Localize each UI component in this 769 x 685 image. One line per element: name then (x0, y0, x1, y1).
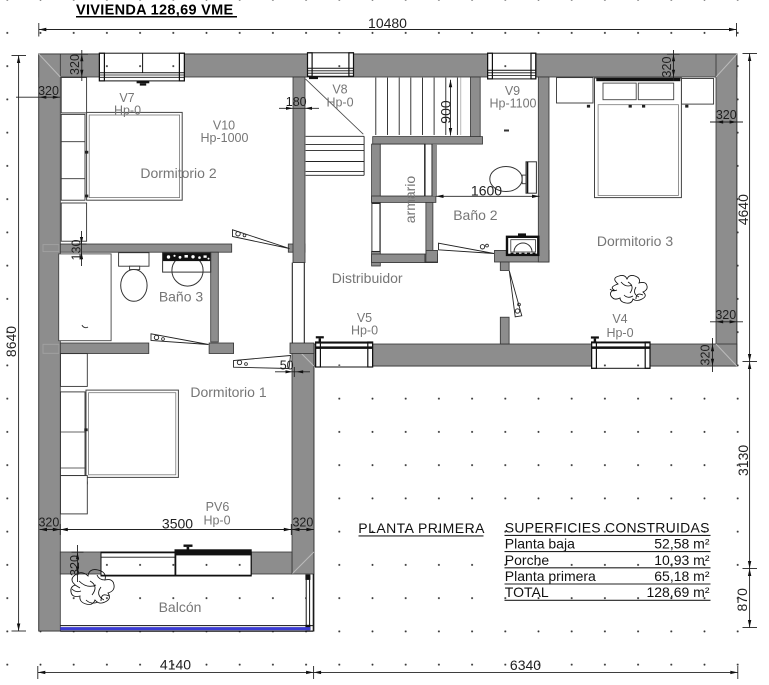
svg-text:Distribuidor: Distribuidor (332, 270, 403, 286)
svg-text:320: 320 (716, 108, 737, 122)
svg-text:SUPERFICIES CONSTRUIDAS: SUPERFICIES CONSTRUIDAS (505, 519, 710, 535)
svg-text:6340: 6340 (510, 657, 541, 673)
svg-text:Porche: Porche (505, 552, 550, 568)
svg-text:900: 900 (438, 100, 454, 124)
svg-text:52,58 m²: 52,58 m² (654, 536, 710, 552)
svg-text:Dormitorio 1: Dormitorio 1 (190, 384, 266, 400)
svg-text:4640: 4640 (735, 194, 751, 225)
svg-text:Hp-1100: Hp-1100 (489, 97, 536, 111)
svg-text:Hp-0: Hp-0 (203, 514, 230, 528)
svg-text:Hp-0: Hp-0 (114, 104, 141, 118)
svg-text:Baño 3: Baño 3 (159, 289, 204, 305)
svg-text:Hp-0: Hp-0 (351, 324, 378, 338)
svg-text:V8: V8 (332, 83, 347, 97)
svg-text:V4: V4 (612, 312, 627, 326)
svg-text:10,93 m²: 10,93 m² (654, 552, 710, 568)
svg-text:320: 320 (38, 84, 59, 98)
svg-text:armario: armario (402, 176, 418, 224)
svg-text:320: 320 (68, 555, 82, 576)
svg-text:10480: 10480 (368, 15, 407, 31)
svg-text:Baño 2: Baño 2 (453, 207, 498, 223)
svg-text:Planta primera: Planta primera (505, 568, 596, 584)
svg-text:320: 320 (698, 345, 712, 366)
svg-text:320: 320 (68, 54, 82, 75)
svg-text:320: 320 (292, 516, 313, 530)
svg-text:Dormitorio 2: Dormitorio 2 (140, 165, 216, 181)
svg-text:128,69 m²: 128,69 m² (646, 584, 709, 600)
svg-text:PV6: PV6 (206, 500, 230, 514)
svg-text:130: 130 (69, 240, 83, 261)
svg-text:1600: 1600 (471, 182, 502, 198)
svg-text:Planta baja: Planta baja (505, 536, 575, 552)
svg-text:Hp-0: Hp-0 (606, 326, 633, 340)
svg-text:Hp-1000: Hp-1000 (201, 131, 249, 145)
svg-text:3500: 3500 (162, 515, 193, 531)
svg-text:320: 320 (660, 57, 674, 78)
svg-text:320: 320 (715, 308, 736, 322)
svg-text:VIVIENDA 128,69 VME: VIVIENDA 128,69 VME (76, 2, 234, 18)
svg-text:TOTAL: TOTAL (505, 584, 549, 600)
svg-text:Dormitorio 3: Dormitorio 3 (597, 233, 673, 249)
svg-text:180: 180 (286, 95, 307, 109)
svg-text:Hp-0: Hp-0 (326, 96, 353, 110)
svg-text:8640: 8640 (3, 326, 19, 357)
svg-text:4140: 4140 (160, 656, 191, 672)
svg-text:Balcón: Balcón (159, 599, 202, 615)
svg-text:320: 320 (38, 516, 59, 530)
svg-text:870: 870 (734, 588, 750, 612)
svg-text:65,18 m²: 65,18 m² (654, 568, 710, 584)
svg-text:3130: 3130 (735, 445, 751, 476)
svg-text:50: 50 (280, 358, 294, 372)
svg-text:PLANTA PRIMERA: PLANTA PRIMERA (358, 520, 485, 536)
